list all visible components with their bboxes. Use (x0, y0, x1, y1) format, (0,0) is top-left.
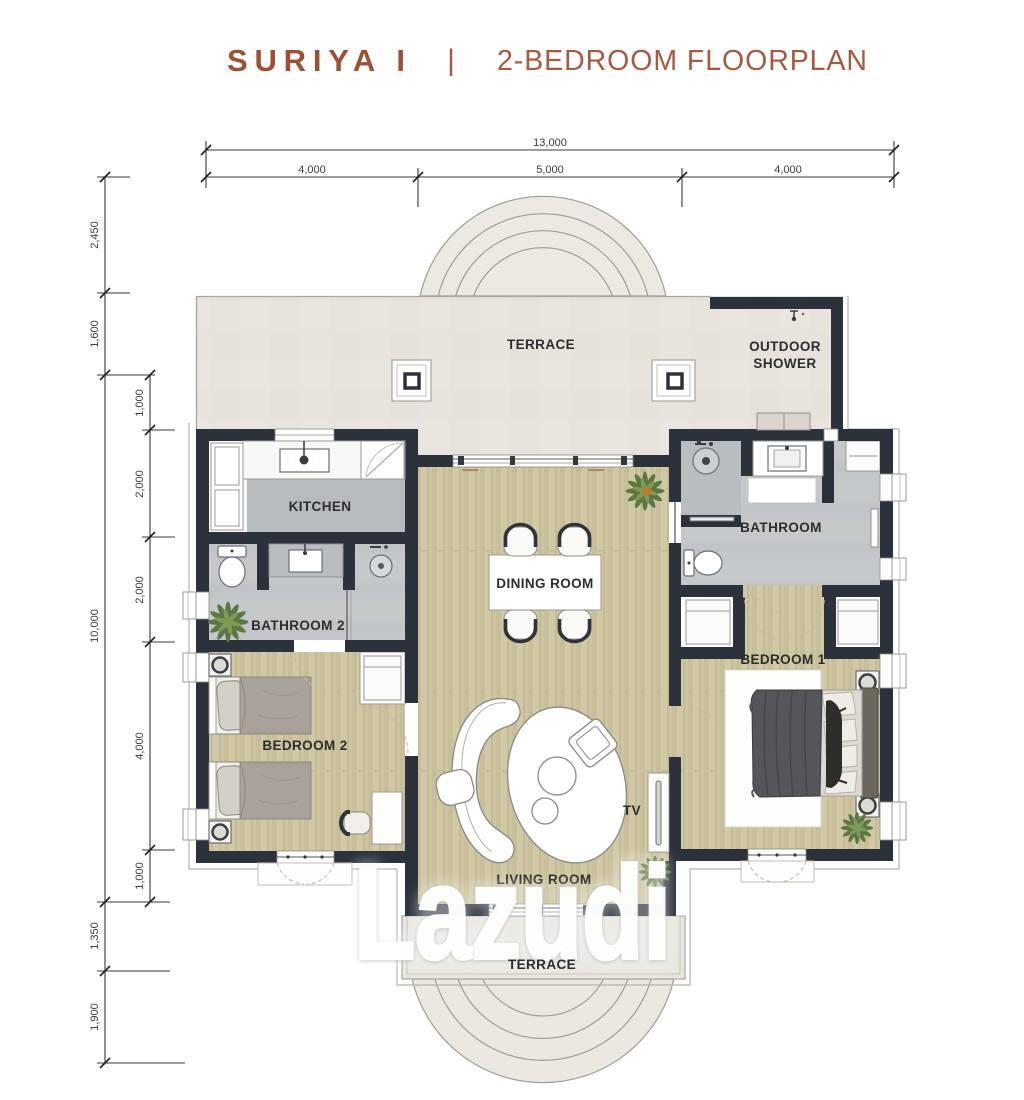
svg-text:TV: TV (623, 803, 641, 818)
svg-text:5,000: 5,000 (536, 164, 564, 176)
svg-text:DINING ROOM: DINING ROOM (496, 576, 593, 591)
svg-text:BEDROOM 2: BEDROOM 2 (262, 738, 347, 753)
svg-text:|: | (447, 44, 455, 77)
svg-text:4,000: 4,000 (774, 164, 802, 176)
svg-text:10,000: 10,000 (89, 609, 101, 643)
svg-text:1,900: 1,900 (89, 1003, 101, 1031)
svg-text:BATHROOM 2: BATHROOM 2 (251, 618, 345, 633)
svg-text:TERRACE: TERRACE (507, 337, 575, 352)
svg-text:OUTDOOR: OUTDOOR (749, 339, 821, 354)
svg-text:4,000: 4,000 (134, 732, 146, 760)
svg-text:KITCHEN: KITCHEN (289, 499, 352, 514)
svg-text:13,000: 13,000 (533, 137, 567, 149)
svg-text:BATHROOM: BATHROOM (740, 520, 822, 535)
svg-text:4,000: 4,000 (298, 164, 326, 176)
svg-text:TERRACE: TERRACE (508, 957, 576, 972)
svg-text:2,000: 2,000 (134, 576, 146, 604)
svg-text:1,000: 1,000 (134, 862, 146, 890)
svg-text:SHOWER: SHOWER (753, 356, 816, 371)
svg-text:2,000: 2,000 (134, 470, 146, 498)
svg-text:BEDROOM 1: BEDROOM 1 (740, 652, 825, 667)
svg-text:1,600: 1,600 (89, 320, 101, 348)
svg-text:2-BEDROOM FLOORPLAN: 2-BEDROOM FLOORPLAN (497, 45, 867, 77)
svg-text:1,350: 1,350 (89, 922, 101, 950)
svg-text:2,450: 2,450 (89, 221, 101, 249)
svg-text:1,000: 1,000 (134, 389, 146, 417)
